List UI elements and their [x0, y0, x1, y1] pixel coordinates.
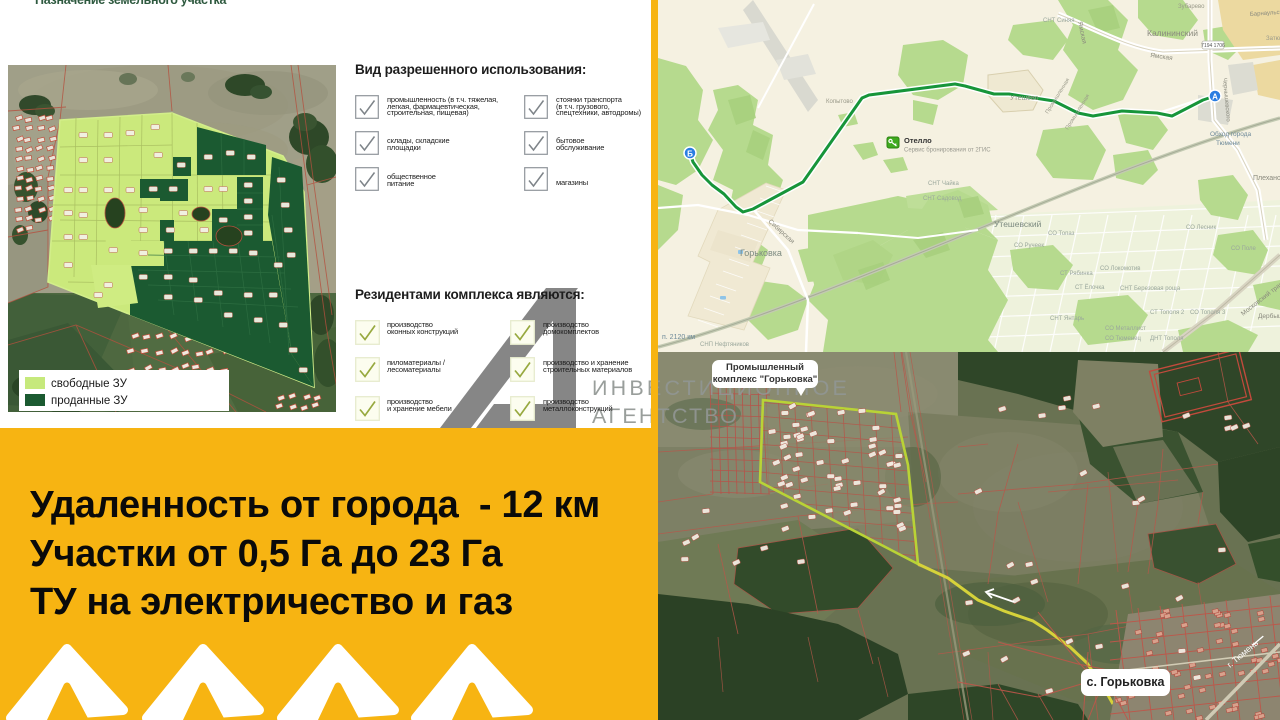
svg-text:7194 1706: 7194 1706 — [1201, 43, 1225, 49]
svg-text:свободные ЗУ: свободные ЗУ — [51, 378, 128, 390]
svg-text:СНТ Садовод: СНТ Садовод — [923, 196, 962, 202]
svg-text:СО Металлист: СО Металлист — [1105, 326, 1146, 332]
svg-text:Плеханова: Плеханова — [1253, 175, 1280, 182]
svg-text:Утешевский: Утешевский — [994, 219, 1042, 229]
svg-text:проданные ЗУ: проданные ЗУ — [51, 395, 128, 407]
svg-text:СО Ручеек: СО Ручеек — [1014, 243, 1044, 249]
svg-text:Отелло: Отелло — [904, 136, 932, 145]
svg-text:Б: Б — [687, 150, 693, 159]
svg-text:СО Поле: СО Поле — [1231, 246, 1257, 252]
svg-text:Тюмени: Тюмени — [1216, 140, 1240, 147]
svg-text:А: А — [1212, 93, 1218, 102]
svg-text:СТ Рябинка: СТ Рябинка — [1060, 271, 1093, 277]
svg-text:Дербыши: Дербыши — [1258, 312, 1280, 320]
svg-text:СНТ Синяя: СНТ Синяя — [1043, 18, 1075, 24]
svg-text:п. 2120 км: п. 2120 км — [662, 334, 695, 341]
svg-text:СО Лесник: СО Лесник — [1186, 225, 1216, 231]
svg-text:СНТ Янтарь: СНТ Янтарь — [1050, 316, 1084, 322]
svg-text:Утешево: Утешево — [1010, 95, 1039, 102]
svg-text:СО Топаз: СО Топаз — [1048, 231, 1075, 237]
svg-text:Зубарево: Зубарево — [1178, 4, 1205, 10]
svg-text:Обход города: Обход города — [1210, 130, 1252, 138]
svg-text:СТ Ёлочка: СТ Ёлочка — [1075, 284, 1105, 291]
svg-text:Горьковка: Горьковка — [740, 248, 782, 258]
svg-text:СО Тюменец: СО Тюменец — [1105, 336, 1141, 342]
svg-text:Затюменка: Затюменка — [1266, 36, 1280, 42]
svg-text:СНП Нефтяников: СНП Нефтяников — [700, 342, 749, 348]
svg-text:Сервис бронирования от 2ГИС: Сервис бронирования от 2ГИС — [904, 148, 991, 154]
svg-text:СО Тополя 3: СО Тополя 3 — [1190, 310, 1226, 316]
svg-text:СТ Тополя 2: СТ Тополя 2 — [1150, 310, 1185, 316]
svg-text:Калининский: Калининский — [1147, 28, 1198, 38]
svg-text:ДНТ Тополя: ДНТ Тополя — [1150, 336, 1183, 342]
svg-text:СО Локомотив: СО Локомотив — [1100, 266, 1140, 272]
svg-text:СНТ Березовая роща: СНТ Березовая роща — [1120, 286, 1181, 292]
svg-text:Копытово: Копытово — [826, 99, 854, 105]
svg-text:СНТ Чайка: СНТ Чайка — [928, 180, 959, 187]
